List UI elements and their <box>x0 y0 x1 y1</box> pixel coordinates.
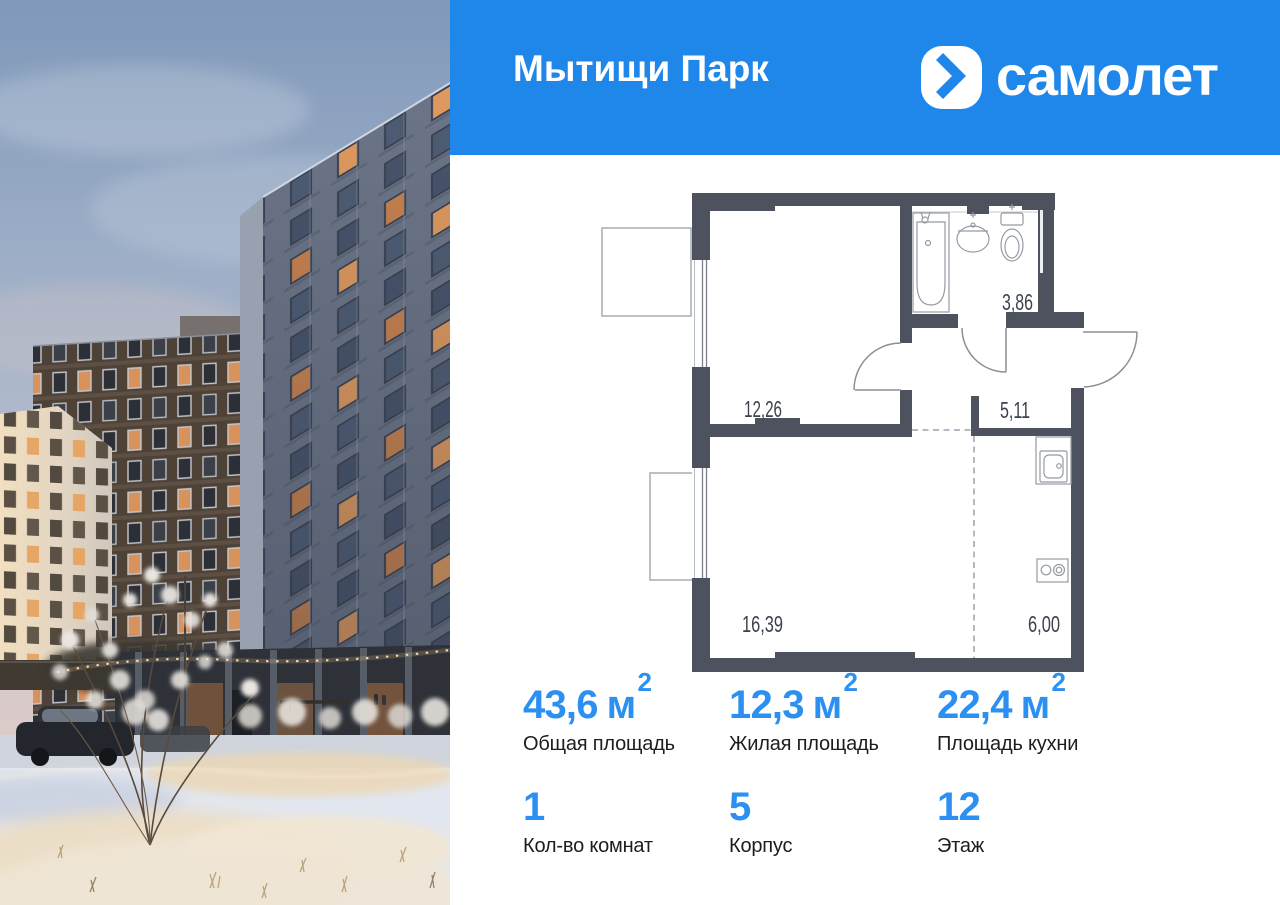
stat-rooms-count: 1 Кол-во комнат <box>523 786 729 858</box>
stove-icon <box>1037 559 1068 582</box>
stat-label: Площадь кухни <box>937 732 1157 756</box>
floor-plan: 12,26 3,86 5,11 16,39 6,00 <box>560 175 1180 700</box>
stat-value: 22,4 <box>937 683 1012 727</box>
balcony-outline <box>602 228 693 580</box>
stat-unit: м <box>1021 683 1050 727</box>
stat-living-area: 12,3м2 Жилая площадь <box>729 684 937 756</box>
stat-building: 5 Корпус <box>729 786 937 858</box>
info-panel: Мытищи Парк самолет <box>450 0 1280 905</box>
stat-label: Общая площадь <box>523 732 729 756</box>
stat-sup: 2 <box>843 667 857 697</box>
snow-field <box>0 752 450 905</box>
header: Мытищи Парк самолет <box>450 0 1280 155</box>
walls <box>692 193 1084 672</box>
zoning-dashed-line <box>912 430 974 658</box>
room-label-hallway: 5,11 <box>1000 397 1030 423</box>
vent-shaft <box>1040 210 1043 273</box>
project-photo <box>0 0 450 905</box>
room-label-bathroom: 3,86 <box>1002 289 1033 315</box>
stat-sup: 2 <box>637 667 651 697</box>
stats-details: 1 Кол-во комнат 5 Корпус 12 Этаж <box>523 786 1157 858</box>
brand-wordmark: самолет <box>996 48 1218 104</box>
stat-label: Жилая площадь <box>729 732 937 756</box>
stat-value: 12,3 <box>729 683 804 727</box>
room-label-main: 16,39 <box>742 611 783 637</box>
stat-sup: 2 <box>1051 667 1065 697</box>
stat-kitchen-area: 22,4м2 Площадь кухни <box>937 684 1157 756</box>
door-arcs <box>854 328 1137 390</box>
kitchen-sink-icon <box>1036 437 1071 484</box>
samolet-chevron-icon <box>921 46 982 109</box>
bath-sink-icon <box>957 212 989 252</box>
stat-value: 43,6 <box>523 683 598 727</box>
brand-logo[interactable]: самолет <box>921 0 1218 155</box>
stats-areas: 43,6м2 Общая площадь 12,3м2 Жилая площад… <box>523 684 1157 756</box>
project-title: Мытищи Парк <box>513 50 769 87</box>
stat-floor: 12 Этаж <box>937 786 1157 858</box>
stat-unit: м <box>607 683 636 727</box>
bathtub-icon <box>913 212 949 312</box>
toilet-icon <box>1001 204 1023 261</box>
stat-unit: м <box>813 683 842 727</box>
room-label-kitchen: 6,00 <box>1028 611 1060 637</box>
stat-total-area: 43,6м2 Общая площадь <box>523 684 729 756</box>
listing-card: Мытищи Парк самолет <box>0 0 1280 905</box>
room-label-living: 12,26 <box>744 396 782 422</box>
